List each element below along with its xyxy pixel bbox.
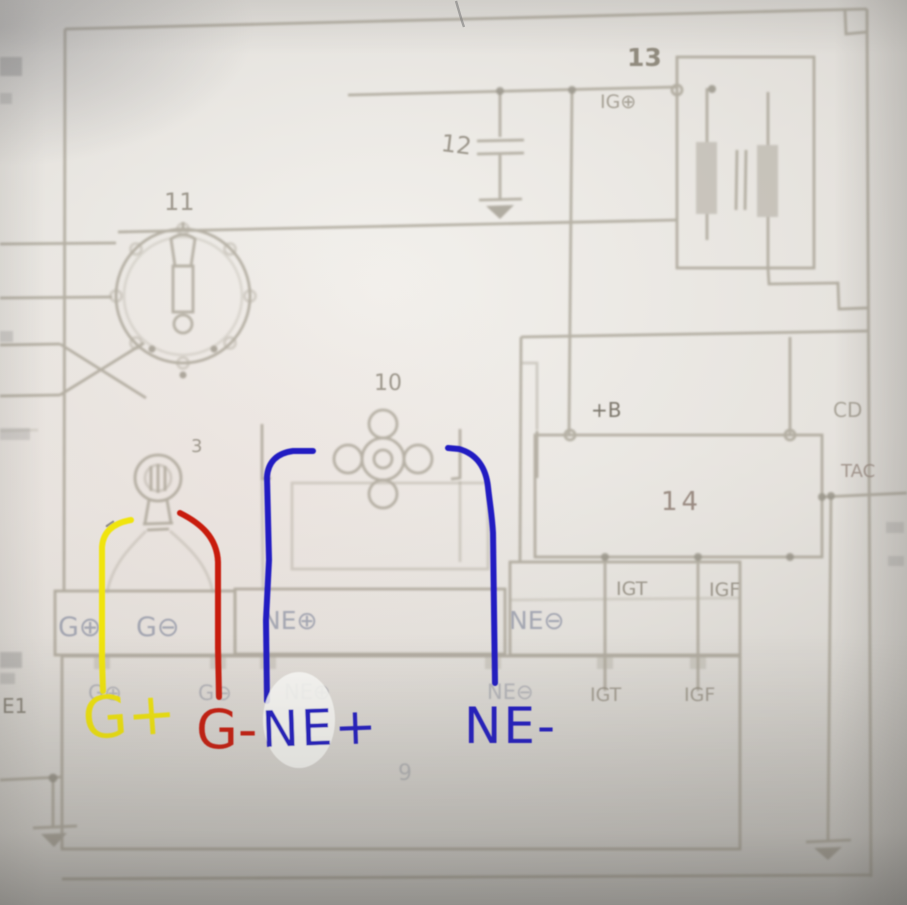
handwritten-g-minus: G- <box>196 698 257 761</box>
wiring-diagram-svg: 11 12 13 IG⊕ 14 10 3 +B CD TAC IGT IGF G… <box>0 0 907 905</box>
label-12-condenser: 12 <box>439 129 473 161</box>
label-ne-minus-connector: NE⊖ <box>509 606 564 635</box>
label-ne-plus-connector: NE⊕ <box>262 606 317 635</box>
label-e1: E1 <box>2 694 27 718</box>
label-13-coil: 13 <box>627 43 662 72</box>
handwritten-ne-minus: NE- <box>464 697 557 755</box>
handwritten-g-plus: G+ <box>80 678 178 752</box>
ignition-coil-symbol <box>672 57 867 309</box>
photographed-wiring-diagram: 11 12 13 IG⊕ 14 10 3 +B CD TAC IGT IGF G… <box>0 0 907 905</box>
label-cd: CD <box>833 398 862 422</box>
left-edge-wires <box>0 243 146 431</box>
label-11-distributor: 11 <box>164 188 195 216</box>
label-plus-b: +B <box>591 398 621 422</box>
label-tac: TAC <box>840 461 875 482</box>
distributor-symbol <box>111 222 256 379</box>
label-g-plus-connector: G⊕ <box>58 612 102 643</box>
handwritten-ne-plus: NE+ <box>260 697 379 759</box>
printed-labels-layer: 11 12 13 IG⊕ 14 10 3 +B CD TAC IGT IGF G… <box>2 43 875 786</box>
label-igf-ecu: IGF <box>684 684 715 706</box>
condenser-symbol <box>477 92 524 219</box>
label-igt-upper: IGT <box>616 578 648 600</box>
label-10-reluctor: 10 <box>374 371 402 396</box>
label-g-minus-connector: G⊖ <box>136 612 180 643</box>
label-igf-upper: IGF <box>709 579 740 601</box>
label-14-igniter: 14 <box>661 487 702 517</box>
label-igt-ecu: IGT <box>590 684 622 706</box>
label-9-ecu: 9 <box>398 761 412 786</box>
label-ig-terminal: IG⊕ <box>600 91 636 113</box>
pen-scratch-mark <box>456 1 464 27</box>
e1-ground <box>0 777 77 847</box>
marker-annotation-layer: G+ G- NE+ NE- <box>80 448 557 768</box>
label-3-pickup: 3 <box>191 436 202 457</box>
marker-red-g-minus-line <box>180 513 219 697</box>
